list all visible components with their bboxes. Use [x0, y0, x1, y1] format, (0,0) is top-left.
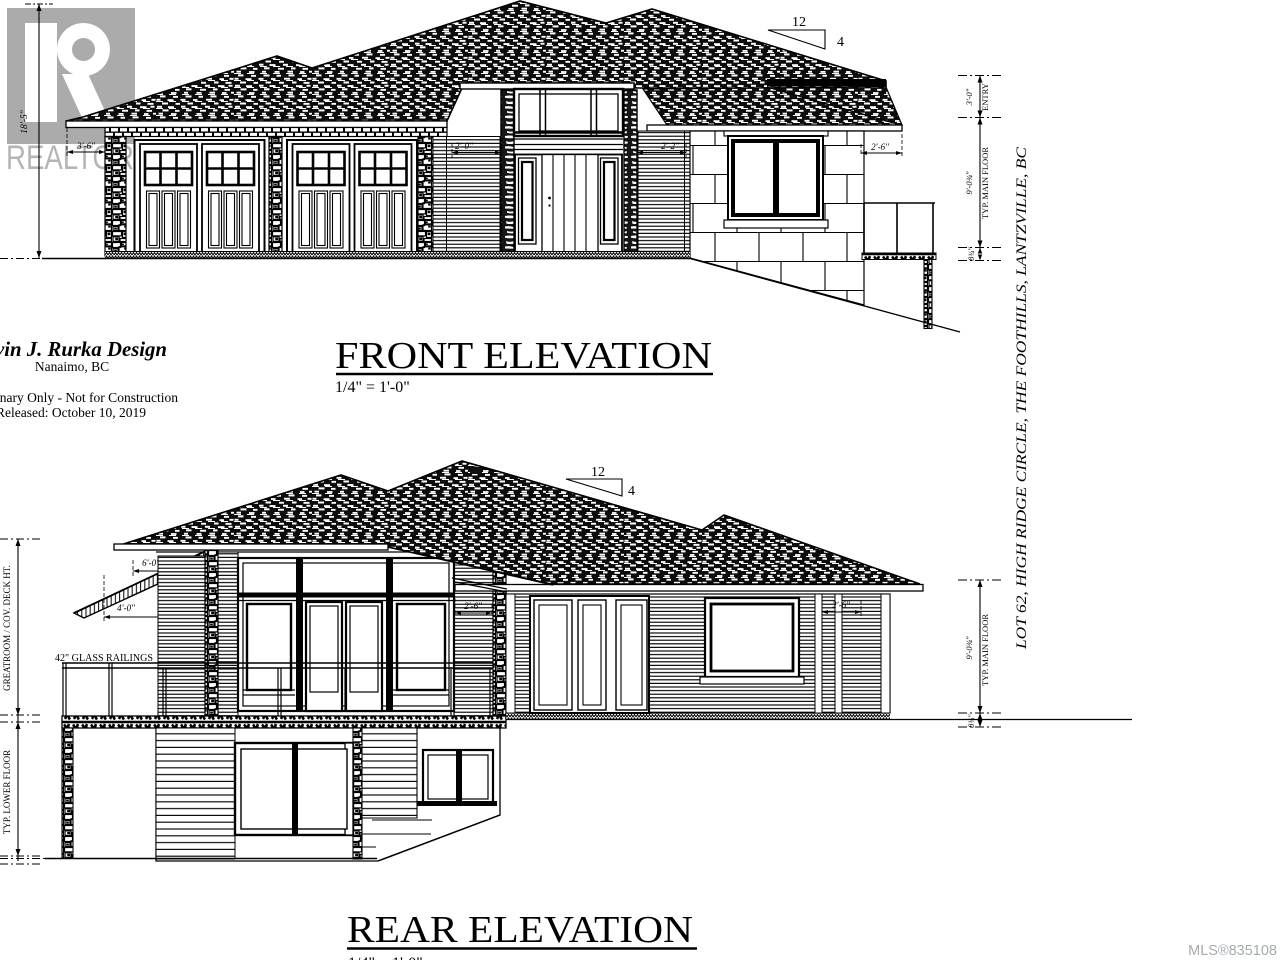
svg-text:2'-6": 2'-6" [832, 600, 850, 610]
svg-text:9'-0¾": 9'-0¾" [964, 171, 974, 195]
svg-text:REAR ELEVATION: REAR ELEVATION [347, 909, 693, 951]
svg-text:3'-0": 3'-0" [964, 88, 974, 106]
svg-text:2'-6": 2'-6" [871, 142, 889, 152]
svg-text:vin J. Rurka Design: vin J. Rurka Design [0, 337, 167, 361]
svg-text:12: 12 [591, 465, 605, 480]
svg-text:2'-0": 2'-0" [455, 141, 473, 151]
svg-text:6'-0": 6'-0" [142, 558, 160, 568]
svg-text:Nanaimo, BC: Nanaimo, BC [35, 359, 109, 374]
svg-text:2'-2": 2'-2" [661, 141, 679, 151]
svg-text:12: 12 [792, 15, 806, 30]
svg-text:FRONT ELEVATION: FRONT ELEVATION [335, 335, 712, 377]
svg-text:2'-6": 2'-6" [464, 601, 482, 611]
svg-text:TYP. LOWER FLOOR: TYP. LOWER FLOOR [2, 750, 12, 834]
svg-text:TYP. MAIN FLOOR: TYP. MAIN FLOOR [980, 147, 990, 219]
svg-text:1/4" = 1'-0": 1/4" = 1'-0" [335, 379, 410, 396]
svg-text:1/4" = 1'-0": 1/4" = 1'-0" [348, 955, 423, 960]
svg-text:MLS®835108: MLS®835108 [1188, 943, 1277, 959]
svg-text:9'-0¾": 9'-0¾" [964, 636, 974, 660]
svg-text:42" GLASS RAILINGS: 42" GLASS RAILINGS [55, 653, 153, 664]
svg-text:18'-5": 18'-5" [20, 109, 30, 133]
svg-text:4: 4 [628, 484, 635, 499]
svg-text:inary Only - Not for Construct: inary Only - Not for Construction [0, 390, 178, 405]
svg-text:8¾": 8¾" [967, 714, 976, 728]
svg-text:Released: October 10, 2019: Released: October 10, 2019 [0, 405, 146, 420]
svg-text:4: 4 [837, 35, 844, 50]
svg-text:GREATROOM / COV. DECK HT.: GREATROOM / COV. DECK HT. [2, 565, 12, 691]
svg-text:TYP. MAIN FLOOR: TYP. MAIN FLOOR [980, 614, 990, 686]
svg-text:3'-6": 3'-6" [76, 141, 95, 151]
svg-text:ENTRY: ENTRY [980, 83, 990, 111]
svg-text:LOT 62, HIGH RIDGE CIRCLE, THE: LOT 62, HIGH RIDGE CIRCLE, THE FOOTHILLS… [1014, 146, 1030, 650]
svg-text:4'-0": 4'-0" [117, 603, 135, 613]
svg-text:8¾": 8¾" [967, 247, 976, 261]
